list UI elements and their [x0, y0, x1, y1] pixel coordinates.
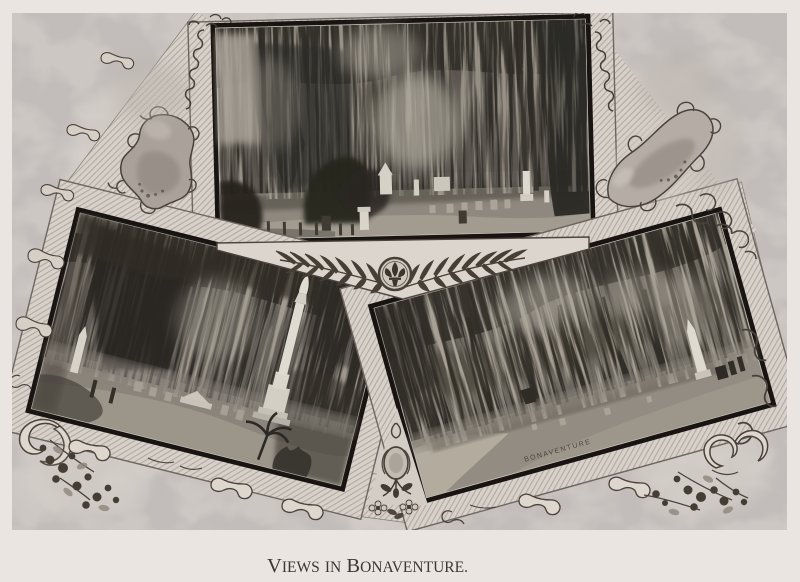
svg-text:VIEWS IN BONAVENTURE.: VIEWS IN BONAVENTURE. [267, 555, 468, 577]
